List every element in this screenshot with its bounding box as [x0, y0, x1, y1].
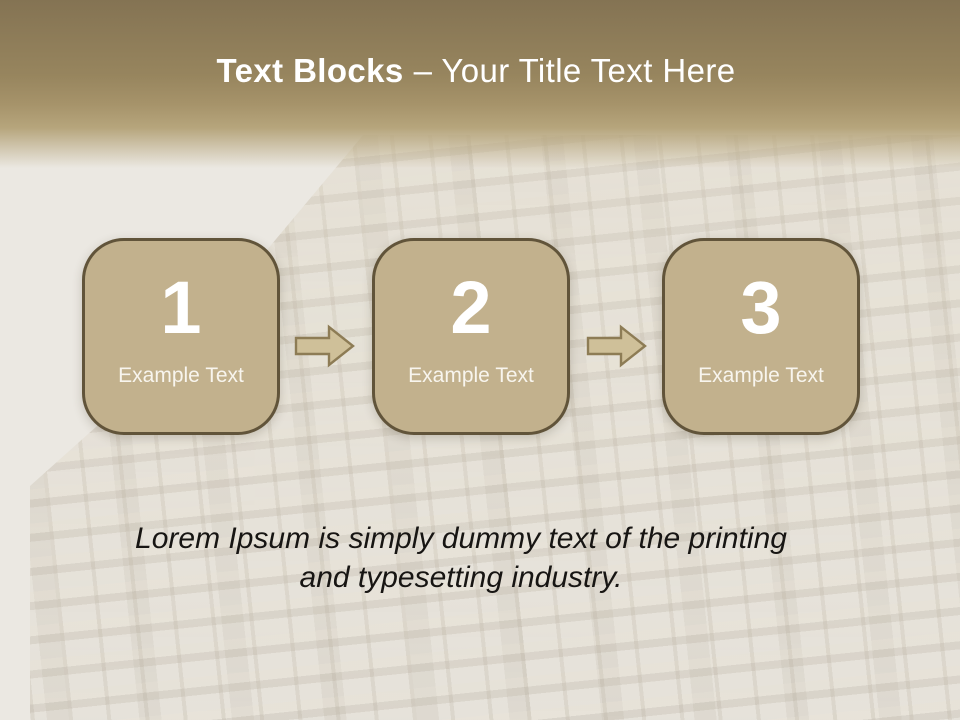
block-number: 1 [160, 265, 201, 351]
arrow-right-icon [586, 324, 648, 368]
page-title-rest: – Your Title Text Here [414, 52, 736, 89]
block-label: Example Text [698, 363, 824, 389]
block-label: Example Text [118, 363, 244, 389]
lorem-caption: Lorem Ipsum is simply dummy text of the … [0, 519, 922, 597]
page-title-emphasis: Text Blocks [217, 52, 404, 89]
text-block-3: 3 Example Text [662, 238, 860, 435]
caption-line-2: and typesetting industry. [0, 558, 922, 597]
text-block-1: 1 Example Text [82, 238, 280, 435]
page-title: Text Blocks– Your Title Text Here [0, 52, 952, 90]
caption-line-1: Lorem Ipsum is simply dummy text of the … [0, 519, 922, 558]
text-block-2: 2 Example Text [372, 238, 570, 435]
block-label: Example Text [408, 363, 534, 389]
block-number: 3 [740, 265, 781, 351]
slide: Text Blocks– Your Title Text Here 1 Exam… [0, 0, 960, 720]
arrow-right-icon [294, 324, 356, 368]
block-number: 2 [450, 265, 491, 351]
